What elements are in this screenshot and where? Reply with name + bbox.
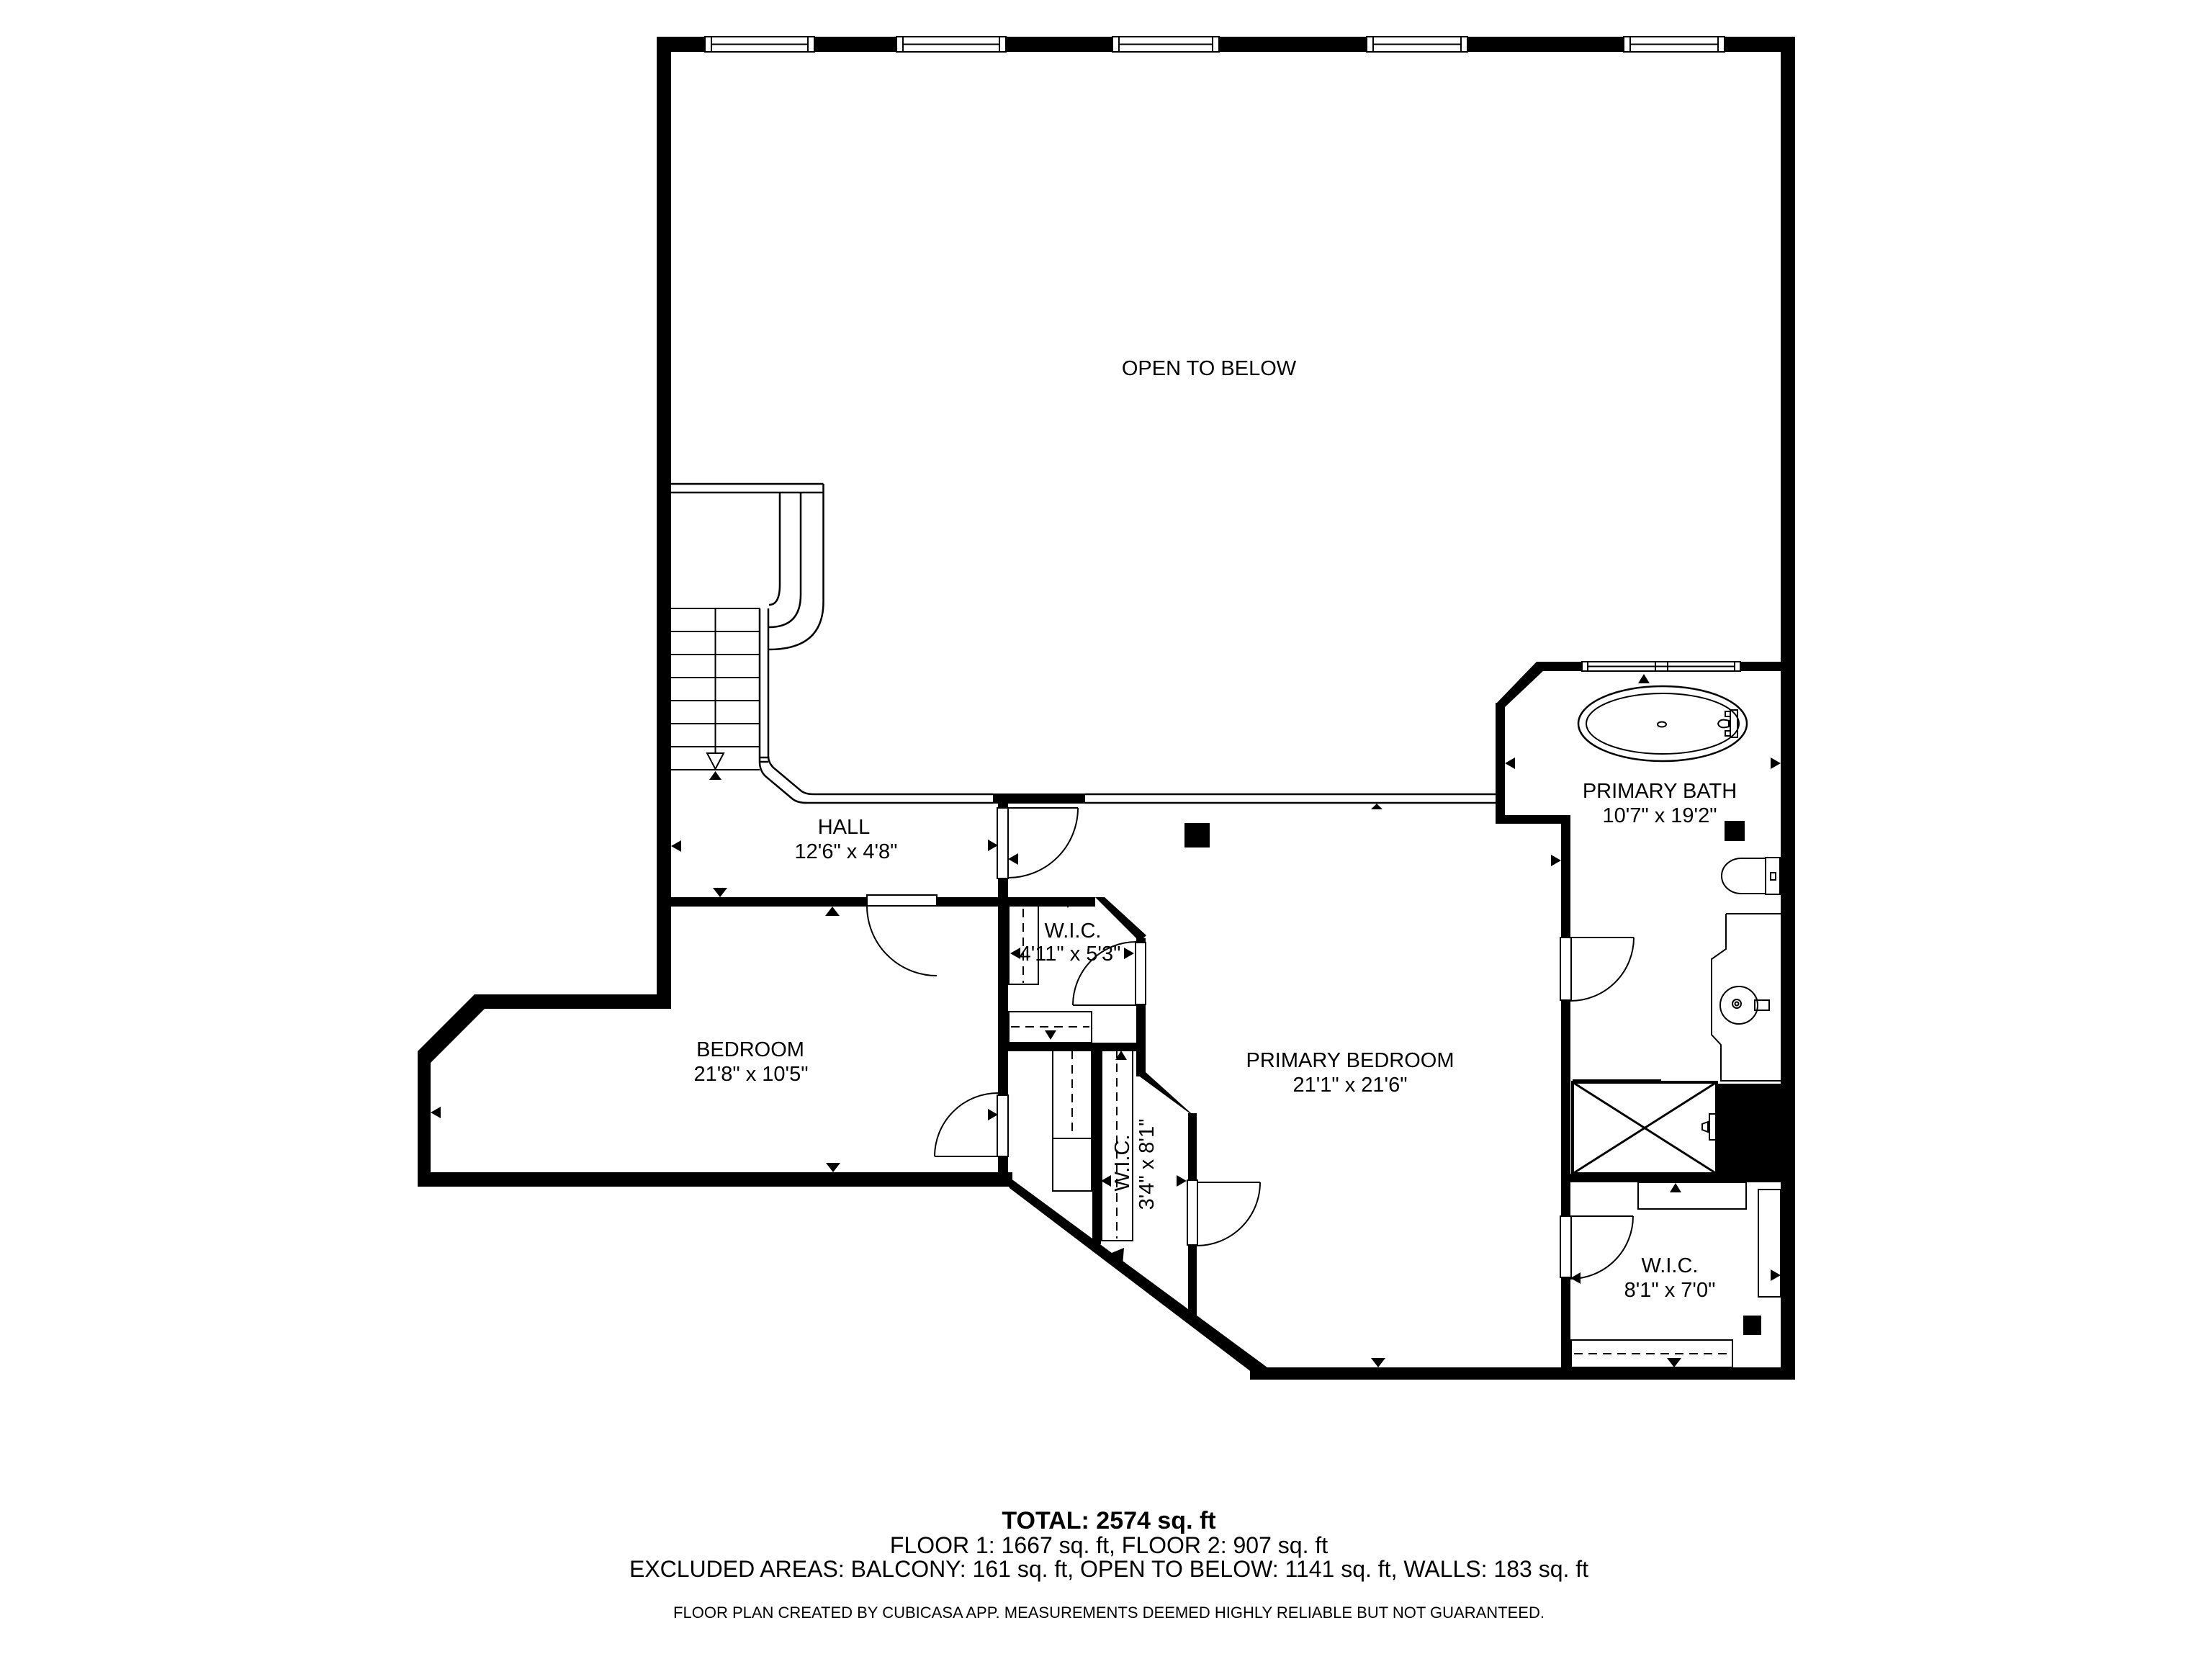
svg-text:W.I.C.: W.I.C. — [1642, 1254, 1699, 1277]
svg-text:3'4" x 8'1": 3'4" x 8'1" — [1136, 1119, 1159, 1210]
svg-text:21'1" x 21'6": 21'1" x 21'6" — [1292, 1074, 1407, 1097]
svg-text:PRIMARY BATH: PRIMARY BATH — [1583, 780, 1737, 803]
svg-text:BEDROOM: BEDROOM — [696, 1038, 804, 1061]
svg-text:OPEN TO BELOW: OPEN TO BELOW — [1122, 357, 1297, 380]
svg-text:8'1" x 7'0": 8'1" x 7'0" — [1624, 1279, 1716, 1302]
svg-text:FLOOR PLAN CREATED BY CUBICASA: FLOOR PLAN CREATED BY CUBICASA APP. MEAS… — [673, 1604, 1545, 1622]
svg-text:4'11" x 5'3": 4'11" x 5'3" — [1020, 943, 1121, 966]
svg-text:PRIMARY BEDROOM: PRIMARY BEDROOM — [1246, 1049, 1455, 1072]
svg-text:21'8" x 10'5": 21'8" x 10'5" — [693, 1063, 808, 1086]
svg-text:12'6" x 4'8": 12'6" x 4'8" — [795, 840, 898, 863]
svg-text:W.I.C.: W.I.C. — [1111, 1135, 1134, 1192]
svg-text:W.I.C.: W.I.C. — [1045, 920, 1102, 943]
svg-text:FLOOR 1: 1667 sq. ft, FLOOR 2:: FLOOR 1: 1667 sq. ft, FLOOR 2: 907 sq. f… — [890, 1532, 1328, 1558]
svg-text:EXCLUDED AREAS: BALCONY: 161 s: EXCLUDED AREAS: BALCONY: 161 sq. ft, OPE… — [629, 1556, 1588, 1582]
svg-text:TOTAL: 2574 sq. ft: TOTAL: 2574 sq. ft — [1002, 1507, 1215, 1534]
svg-text:10'7" x 19'2": 10'7" x 19'2" — [1602, 804, 1717, 827]
svg-text:HALL: HALL — [818, 816, 871, 839]
